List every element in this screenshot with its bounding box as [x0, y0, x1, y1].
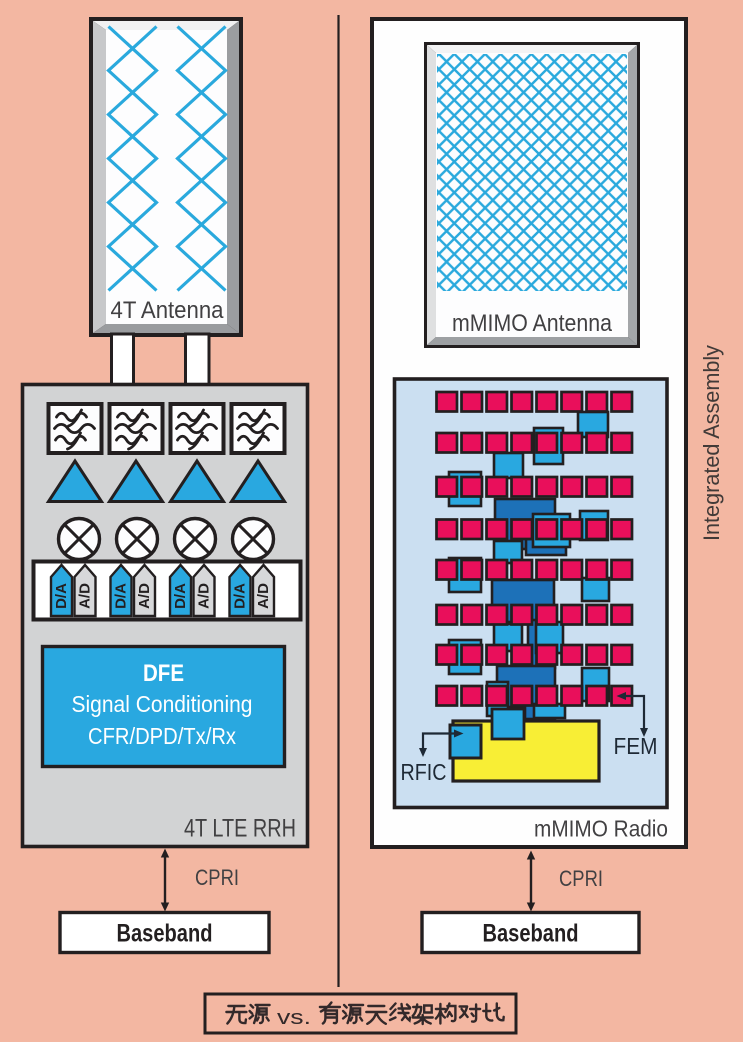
svg-text:Baseband: Baseband: [483, 920, 579, 948]
svg-text:mMIMO Antenna: mMIMO Antenna: [452, 310, 613, 337]
svg-text:FEM: FEM: [614, 733, 658, 759]
svg-text:mMIMO Radio: mMIMO Radio: [534, 816, 668, 842]
svg-text:RFIC: RFIC: [401, 759, 447, 785]
svg-text:A/D: A/D: [77, 583, 94, 609]
svg-text:CFR/DPD/Tx/Rx: CFR/DPD/Tx/Rx: [88, 723, 236, 749]
svg-text:4T Antenna: 4T Antenna: [111, 297, 225, 324]
svg-text:CPRI: CPRI: [195, 865, 239, 890]
svg-text:DFE: DFE: [143, 660, 184, 687]
svg-text:Signal Conditioning: Signal Conditioning: [72, 691, 253, 717]
svg-text:D/A: D/A: [53, 583, 70, 609]
svg-text:4T LTE RRH: 4T LTE RRH: [184, 815, 296, 843]
svg-text:Baseband: Baseband: [117, 920, 213, 948]
svg-text:Integrated Assembly: Integrated Assembly: [699, 345, 724, 541]
svg-text:D/A: D/A: [113, 583, 130, 609]
svg-text:CPRI: CPRI: [559, 866, 603, 891]
svg-text:D/A: D/A: [232, 583, 249, 609]
svg-text:A/D: A/D: [196, 583, 213, 609]
svg-text:D/A: D/A: [172, 583, 189, 609]
svg-text:vs.: vs.: [277, 1007, 311, 1029]
svg-text:A/D: A/D: [136, 583, 153, 609]
svg-text:A/D: A/D: [255, 583, 272, 609]
